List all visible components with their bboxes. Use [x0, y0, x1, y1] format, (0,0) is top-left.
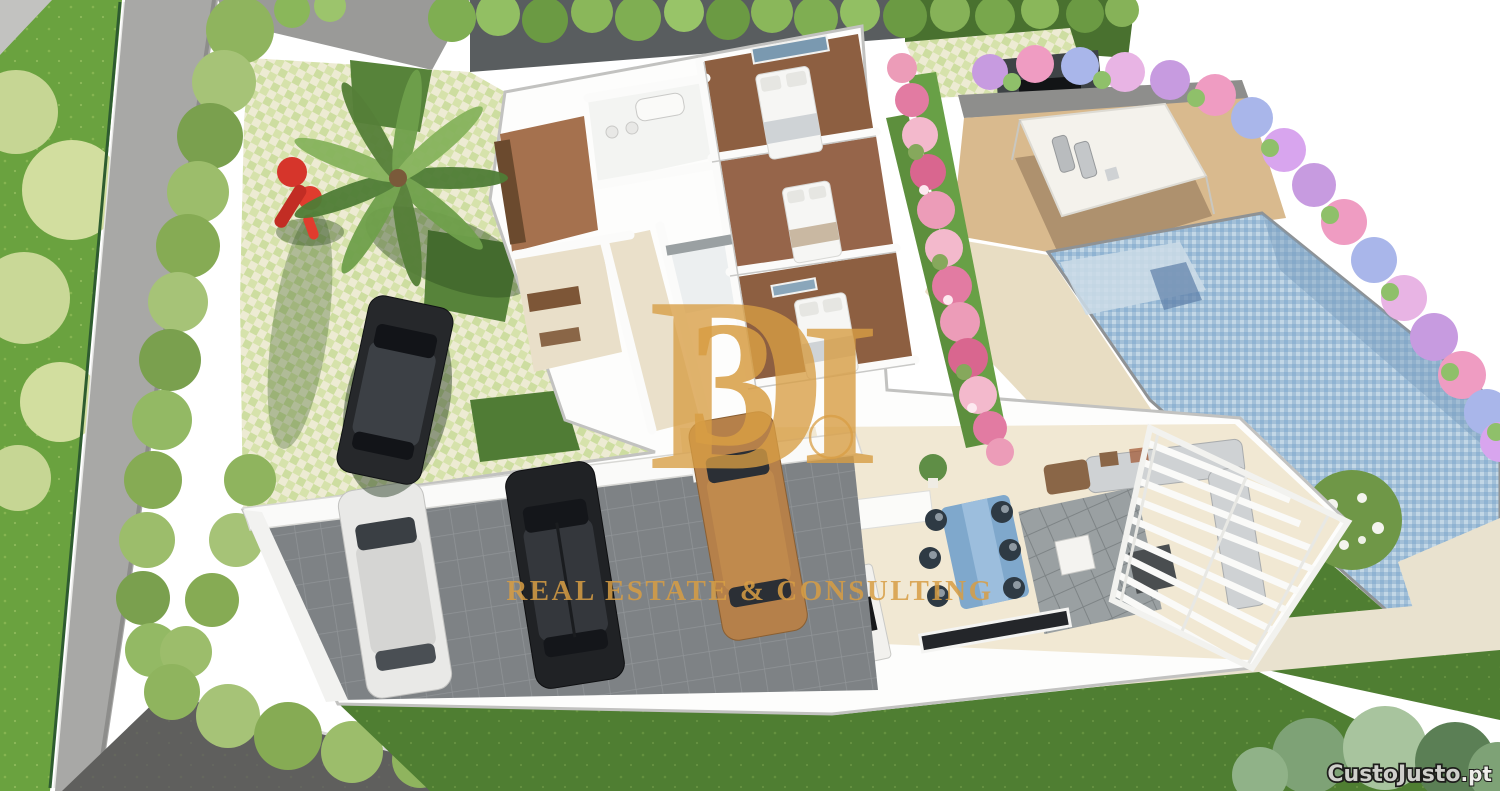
side-table: [1055, 535, 1095, 575]
marketplace-watermark: CustoJusto.pt: [1327, 762, 1492, 787]
watermark-monogram-bar: I: [800, 281, 880, 508]
marketplace-tld: .pt: [1461, 762, 1493, 786]
render-canvas: D 3 I REAL ESTATE & CONSULTING CustoJust…: [0, 0, 1500, 791]
watermark-monogram-3: 3: [688, 284, 778, 483]
watermark-tagline: REAL ESTATE & CONSULTING: [506, 575, 993, 607]
marketplace-brand: CustoJusto: [1327, 762, 1460, 787]
sink: [626, 122, 638, 134]
sink: [606, 126, 618, 138]
